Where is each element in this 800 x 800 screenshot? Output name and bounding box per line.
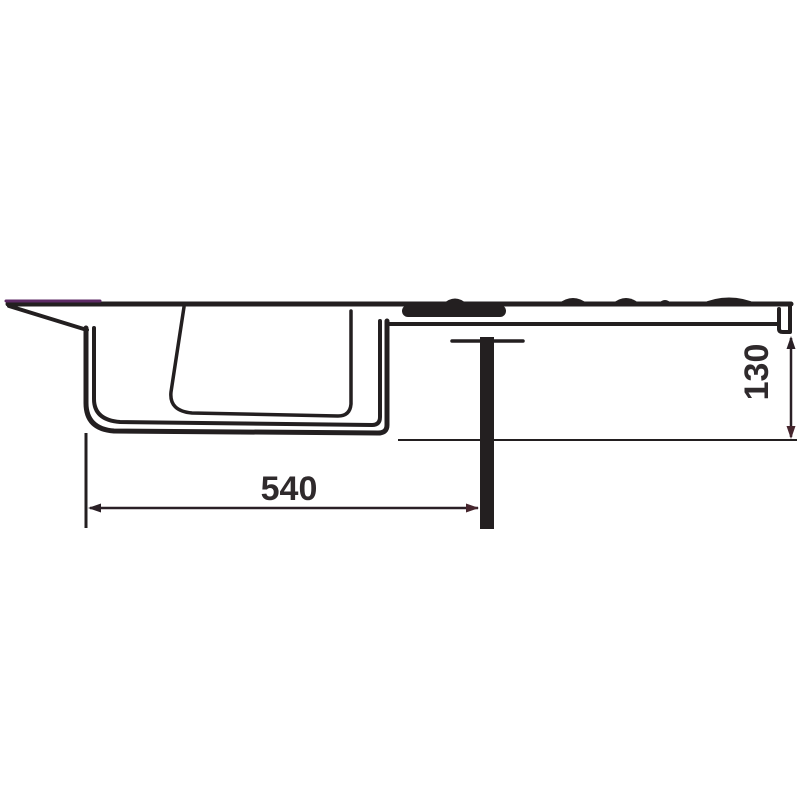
height-dimension-arrow-bottom [787, 426, 796, 439]
drainboard-ridge [658, 300, 672, 304]
height-dimension-label: 130 [738, 344, 776, 401]
drainboard-ridge [612, 298, 640, 304]
width-dimension-label: 540 [261, 470, 318, 508]
height-dimension-arrow-top [787, 336, 796, 349]
sink-dimension-drawing: 540 130 [0, 0, 800, 800]
width-dimension-extension-right [480, 337, 494, 529]
drawing-canvas: 540 130 [0, 0, 800, 800]
drainboard-ridge [558, 298, 588, 304]
rim-left-bevel-edge [9, 306, 87, 330]
bowl-inner-wall [94, 321, 380, 425]
height-dimension: 130 [398, 336, 797, 440]
bowl-back-wall-edge [171, 307, 351, 416]
width-dimension-arrow-right [466, 504, 479, 513]
drainboard-ridge [443, 299, 467, 305]
rim-right-lip [779, 306, 790, 332]
drainboard-ridge [700, 298, 758, 305]
width-dimension-arrow-left [88, 504, 101, 513]
